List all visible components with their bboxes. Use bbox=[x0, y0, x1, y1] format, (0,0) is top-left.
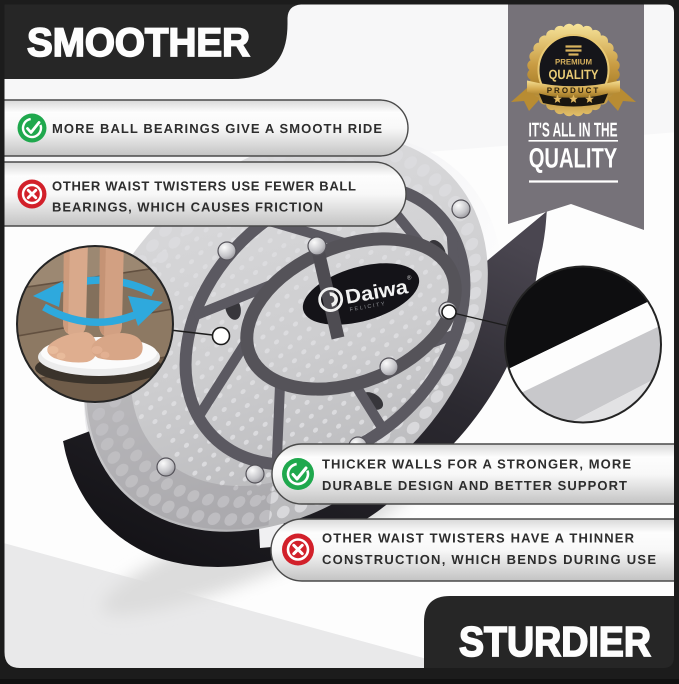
svg-text:PREMIUM: PREMIUM bbox=[555, 58, 592, 67]
svg-text:QUALITY: QUALITY bbox=[549, 67, 599, 82]
svg-text:DURABLE DESIGN AND BETTER SUPP: DURABLE DESIGN AND BETTER SUPPORT bbox=[322, 478, 627, 493]
svg-text:SMOOTHER: SMOOTHER bbox=[27, 21, 250, 65]
svg-text:PRODUCT: PRODUCT bbox=[547, 86, 601, 95]
svg-text:CONSTRUCTION, WHICH BENDS DURI: CONSTRUCTION, WHICH BENDS DURING USE bbox=[322, 552, 656, 567]
svg-text:OTHER WAIST TWISTERS HAVE A TH: OTHER WAIST TWISTERS HAVE A THINNER bbox=[322, 530, 635, 545]
svg-text:MORE BALL BEARINGS GIVE A SMOO: MORE BALL BEARINGS GIVE A SMOOTH RIDE bbox=[52, 121, 382, 136]
svg-text:BEARINGS, WHICH CAUSES FRICTIO: BEARINGS, WHICH CAUSES FRICTION bbox=[52, 200, 323, 215]
svg-text:THICKER WALLS FOR A STRONGER,: THICKER WALLS FOR A STRONGER, MORE bbox=[322, 457, 631, 472]
svg-text:STURDIER: STURDIER bbox=[459, 618, 651, 665]
svg-text:QUALITY: QUALITY bbox=[529, 143, 618, 174]
svg-text:IT'S ALL IN THE: IT'S ALL IN THE bbox=[529, 120, 618, 142]
svg-text:OTHER WAIST TWISTERS USE FEWER: OTHER WAIST TWISTERS USE FEWER BALL bbox=[52, 178, 356, 193]
